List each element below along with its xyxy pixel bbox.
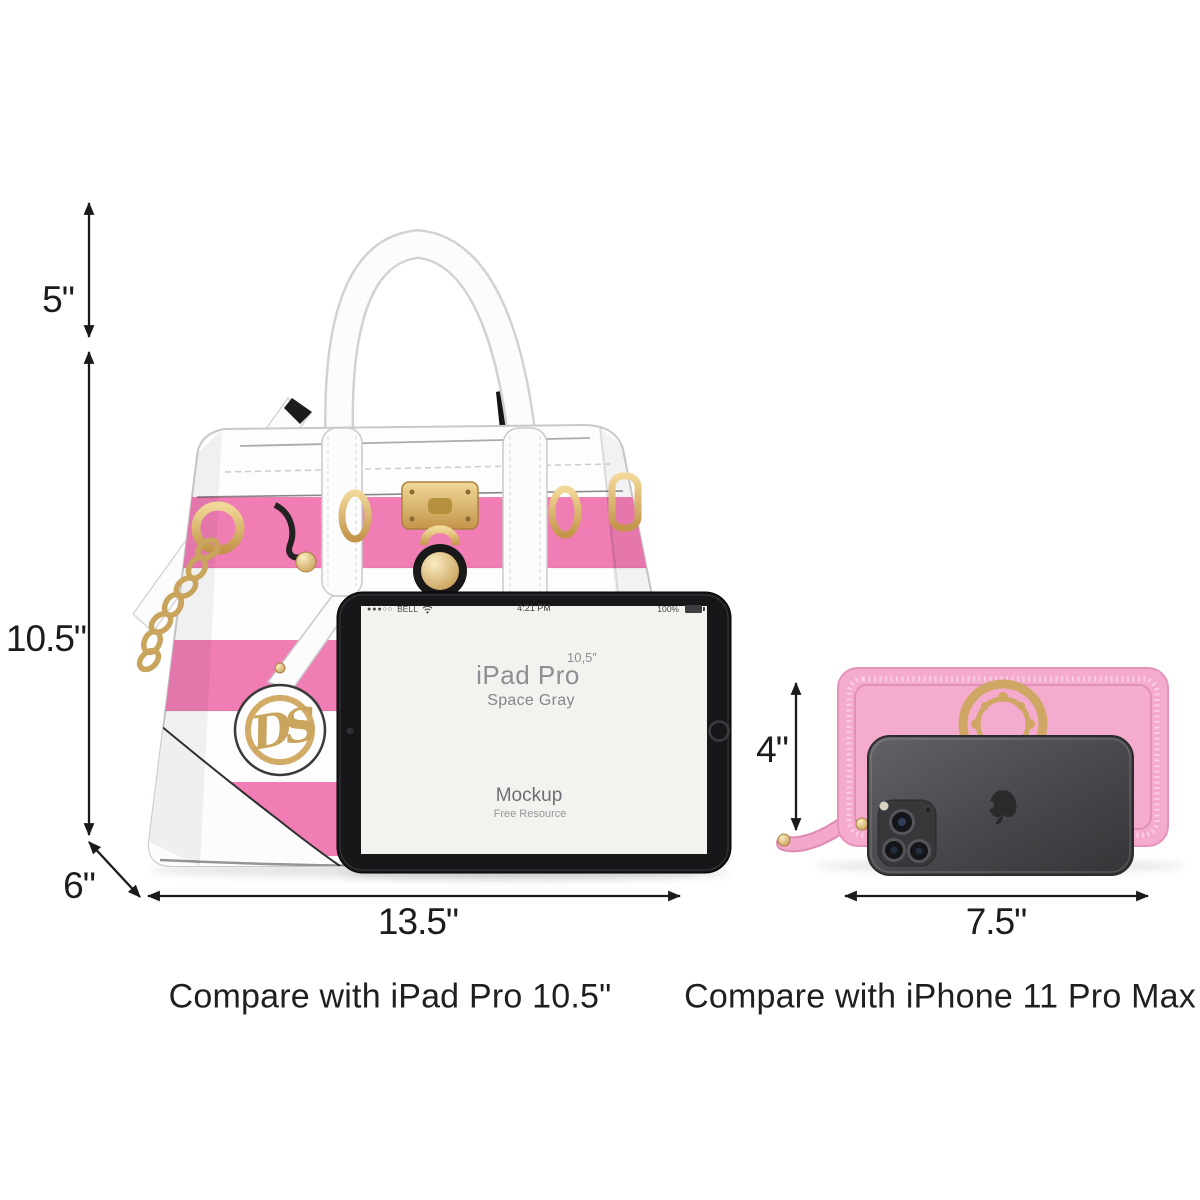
lock-plate (402, 482, 478, 529)
dim-label-handle-height: 5" (42, 279, 74, 321)
strap-rivet (856, 818, 868, 830)
ipad-status-battery: 100% (657, 604, 702, 614)
dim-label-bag-height: 10.5" (6, 618, 86, 660)
iphone-camera-module (878, 800, 936, 866)
strap-clasp (778, 834, 790, 846)
ipad-camera (347, 728, 354, 735)
iphone-flash (880, 802, 889, 811)
ipad-screen-title: iPad Pro (476, 660, 580, 691)
ipad-status-time: 4:21 PM (517, 603, 551, 613)
battery-percent-label: 100% (657, 604, 679, 614)
signal-strength-icon: ●●●○○ (367, 606, 393, 613)
ipad-home-button (710, 722, 729, 741)
dim-label-wallet-width: 7.5" (966, 901, 1027, 943)
carrier-label: BELL (397, 604, 418, 614)
product-illustration (0, 0, 1200, 1200)
iphone (868, 736, 1133, 875)
dim-label-wallet-height: 4" (756, 729, 788, 771)
bag-handle (339, 244, 524, 456)
dim-label-bag-depth: 6" (63, 865, 95, 907)
ipad-screen-size-superscript: 10,5″ (567, 650, 597, 665)
caption-compare-ipad: Compare with iPad Pro 10.5" (169, 978, 612, 1017)
ipad-screen-subtitle: Space Gray (487, 692, 574, 710)
product-comparison-image: 5" 10.5" 6" 13.5" 4" 7.5" Compare with i… (0, 0, 1200, 1200)
ipad-screen-mockup-subheading: Free Resource (494, 808, 567, 820)
dim-label-bag-width: 13.5" (378, 901, 458, 943)
ipad-screen-mockup-heading: Mockup (496, 785, 563, 807)
caption-compare-iphone: Compare with iPhone 11 Pro Max (684, 978, 1196, 1017)
wifi-icon (422, 605, 433, 614)
iphone-mic (926, 808, 930, 812)
ipad (337, 592, 731, 873)
charm-monogram: DS (247, 697, 315, 760)
ipad-status-left: ●●●○○ BELL (367, 604, 433, 614)
arrow-bag-depth (89, 842, 140, 897)
battery-icon (685, 605, 702, 613)
